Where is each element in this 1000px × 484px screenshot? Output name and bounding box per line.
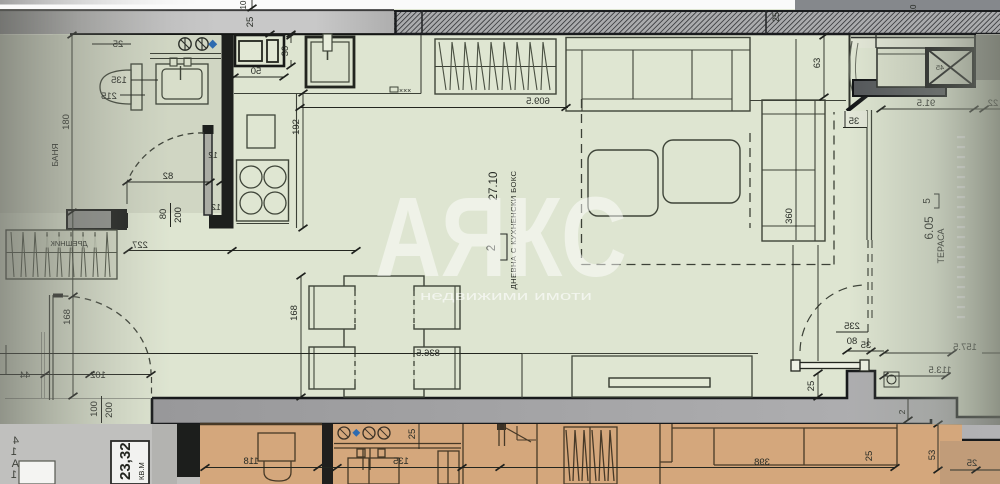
svg-text:360: 360 bbox=[784, 208, 795, 224]
svg-text:×××: ××× bbox=[399, 88, 411, 95]
svg-text:50: 50 bbox=[251, 66, 262, 77]
svg-text:30: 30 bbox=[280, 46, 291, 57]
svg-text:КВ.М: КВ.М bbox=[137, 462, 146, 480]
svg-text:10: 10 bbox=[239, 0, 248, 9]
svg-text:609.5: 609.5 bbox=[526, 96, 550, 107]
svg-text:398: 398 bbox=[754, 457, 770, 468]
svg-text:168: 168 bbox=[289, 305, 300, 321]
svg-text:23,32: 23,32 bbox=[117, 442, 134, 480]
svg-text:118: 118 bbox=[243, 456, 258, 467]
svg-text:12: 12 bbox=[208, 150, 218, 160]
svg-text:25: 25 bbox=[407, 429, 418, 440]
svg-text:12: 12 bbox=[211, 202, 221, 212]
svg-text:недвижими имоти: недвижими имоти bbox=[420, 288, 592, 303]
svg-text:25: 25 bbox=[806, 381, 817, 392]
svg-text:1: 1 bbox=[11, 446, 17, 458]
svg-text:25: 25 bbox=[771, 12, 781, 22]
svg-text:25: 25 bbox=[245, 17, 256, 28]
svg-text:836.5: 836.5 bbox=[416, 348, 440, 359]
svg-text:53: 53 bbox=[927, 450, 938, 461]
svg-text:10: 10 bbox=[909, 4, 918, 13]
svg-text:25: 25 bbox=[864, 451, 875, 462]
svg-text:АЯКС: АЯКС bbox=[375, 174, 627, 300]
svg-text:63: 63 bbox=[812, 58, 823, 69]
svg-text:1: 1 bbox=[11, 469, 17, 481]
svg-text:192: 192 bbox=[291, 119, 302, 135]
svg-text:135: 135 bbox=[393, 456, 409, 467]
svg-text:200: 200 bbox=[173, 207, 184, 223]
